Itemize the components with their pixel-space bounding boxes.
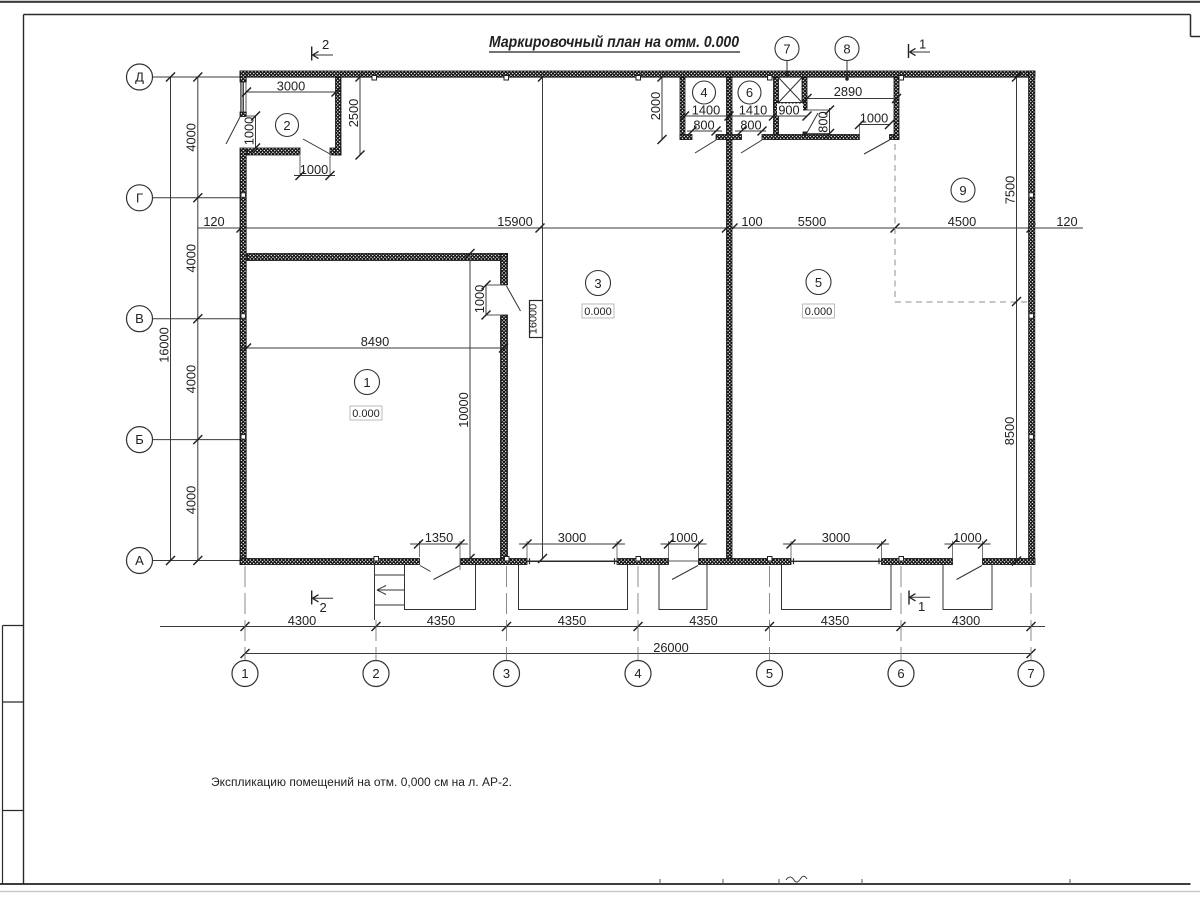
svg-text:1: 1 [919, 37, 926, 52]
svg-text:4300: 4300 [952, 613, 980, 628]
svg-text:15900: 15900 [497, 214, 533, 229]
svg-text:2000: 2000 [648, 92, 663, 120]
svg-text:7: 7 [783, 42, 790, 57]
svg-text:1000: 1000 [953, 530, 981, 545]
svg-text:8490: 8490 [361, 334, 389, 349]
svg-text:2: 2 [322, 37, 329, 52]
svg-text:3: 3 [503, 666, 510, 681]
svg-text:5500: 5500 [798, 214, 826, 229]
svg-text:9: 9 [959, 183, 966, 198]
svg-text:16000: 16000 [156, 327, 171, 363]
svg-text:4: 4 [700, 85, 707, 100]
svg-text:120: 120 [1056, 214, 1077, 229]
svg-text:6: 6 [746, 85, 753, 100]
svg-text:3000: 3000 [822, 530, 850, 545]
svg-text:26000: 26000 [653, 640, 689, 655]
svg-text:7: 7 [1027, 666, 1034, 681]
svg-text:Экспликацию помещений на отм.: Экспликацию помещений на отм. 0,000 см н… [211, 777, 512, 789]
svg-text:4500: 4500 [948, 214, 976, 229]
svg-text:1000: 1000 [241, 117, 256, 145]
svg-text:4000: 4000 [184, 365, 199, 393]
svg-text:1000: 1000 [860, 111, 888, 126]
svg-text:4300: 4300 [288, 613, 316, 628]
svg-text:Б: Б [135, 432, 144, 447]
svg-text:4350: 4350 [558, 613, 586, 628]
svg-text:Г: Г [136, 190, 143, 205]
svg-text:2: 2 [320, 600, 327, 615]
svg-text:Д: Д [135, 70, 144, 85]
svg-text:4350: 4350 [821, 613, 849, 628]
svg-text:6: 6 [897, 666, 904, 681]
svg-text:4: 4 [634, 666, 641, 681]
svg-text:1: 1 [918, 599, 925, 614]
svg-text:0.000: 0.000 [584, 306, 612, 318]
svg-text:3000: 3000 [277, 79, 305, 94]
svg-text:Маркировочный план на отм. 0.0: Маркировочный план на отм. 0.000 [489, 34, 739, 51]
svg-text:2: 2 [372, 666, 379, 681]
svg-text:4000: 4000 [184, 123, 199, 151]
svg-text:1400: 1400 [692, 103, 720, 118]
svg-text:4350: 4350 [689, 613, 717, 628]
svg-text:16000: 16000 [528, 304, 540, 335]
svg-text:120: 120 [203, 214, 224, 229]
svg-text:1410: 1410 [739, 103, 767, 118]
svg-text:1: 1 [241, 666, 248, 681]
svg-text:10000: 10000 [456, 392, 471, 428]
svg-text:0.000: 0.000 [352, 408, 380, 420]
svg-text:800: 800 [693, 118, 714, 133]
svg-text:900: 900 [778, 103, 799, 118]
svg-text:4000: 4000 [184, 486, 199, 514]
svg-text:5: 5 [766, 666, 773, 681]
svg-text:4350: 4350 [427, 613, 455, 628]
svg-text:1000: 1000 [472, 285, 487, 313]
svg-text:1350: 1350 [425, 530, 453, 545]
svg-text:800: 800 [740, 118, 761, 133]
svg-text:2: 2 [283, 118, 290, 133]
svg-text:5: 5 [815, 275, 822, 290]
svg-text:1000: 1000 [669, 530, 697, 545]
svg-text:8: 8 [843, 42, 850, 57]
svg-text:3: 3 [594, 276, 601, 291]
svg-text:4000: 4000 [184, 244, 199, 272]
svg-text:3000: 3000 [558, 530, 586, 545]
svg-text:А: А [135, 553, 144, 568]
svg-text:1: 1 [363, 375, 370, 390]
svg-text:100: 100 [741, 214, 762, 229]
svg-text:0.000: 0.000 [805, 306, 833, 318]
svg-text:1000: 1000 [300, 162, 328, 177]
svg-text:2500: 2500 [346, 99, 361, 127]
svg-text:В: В [135, 311, 144, 326]
svg-text:7500: 7500 [1002, 176, 1017, 204]
svg-text:800: 800 [815, 111, 830, 132]
svg-text:8500: 8500 [1002, 417, 1017, 445]
svg-text:2890: 2890 [834, 84, 862, 99]
